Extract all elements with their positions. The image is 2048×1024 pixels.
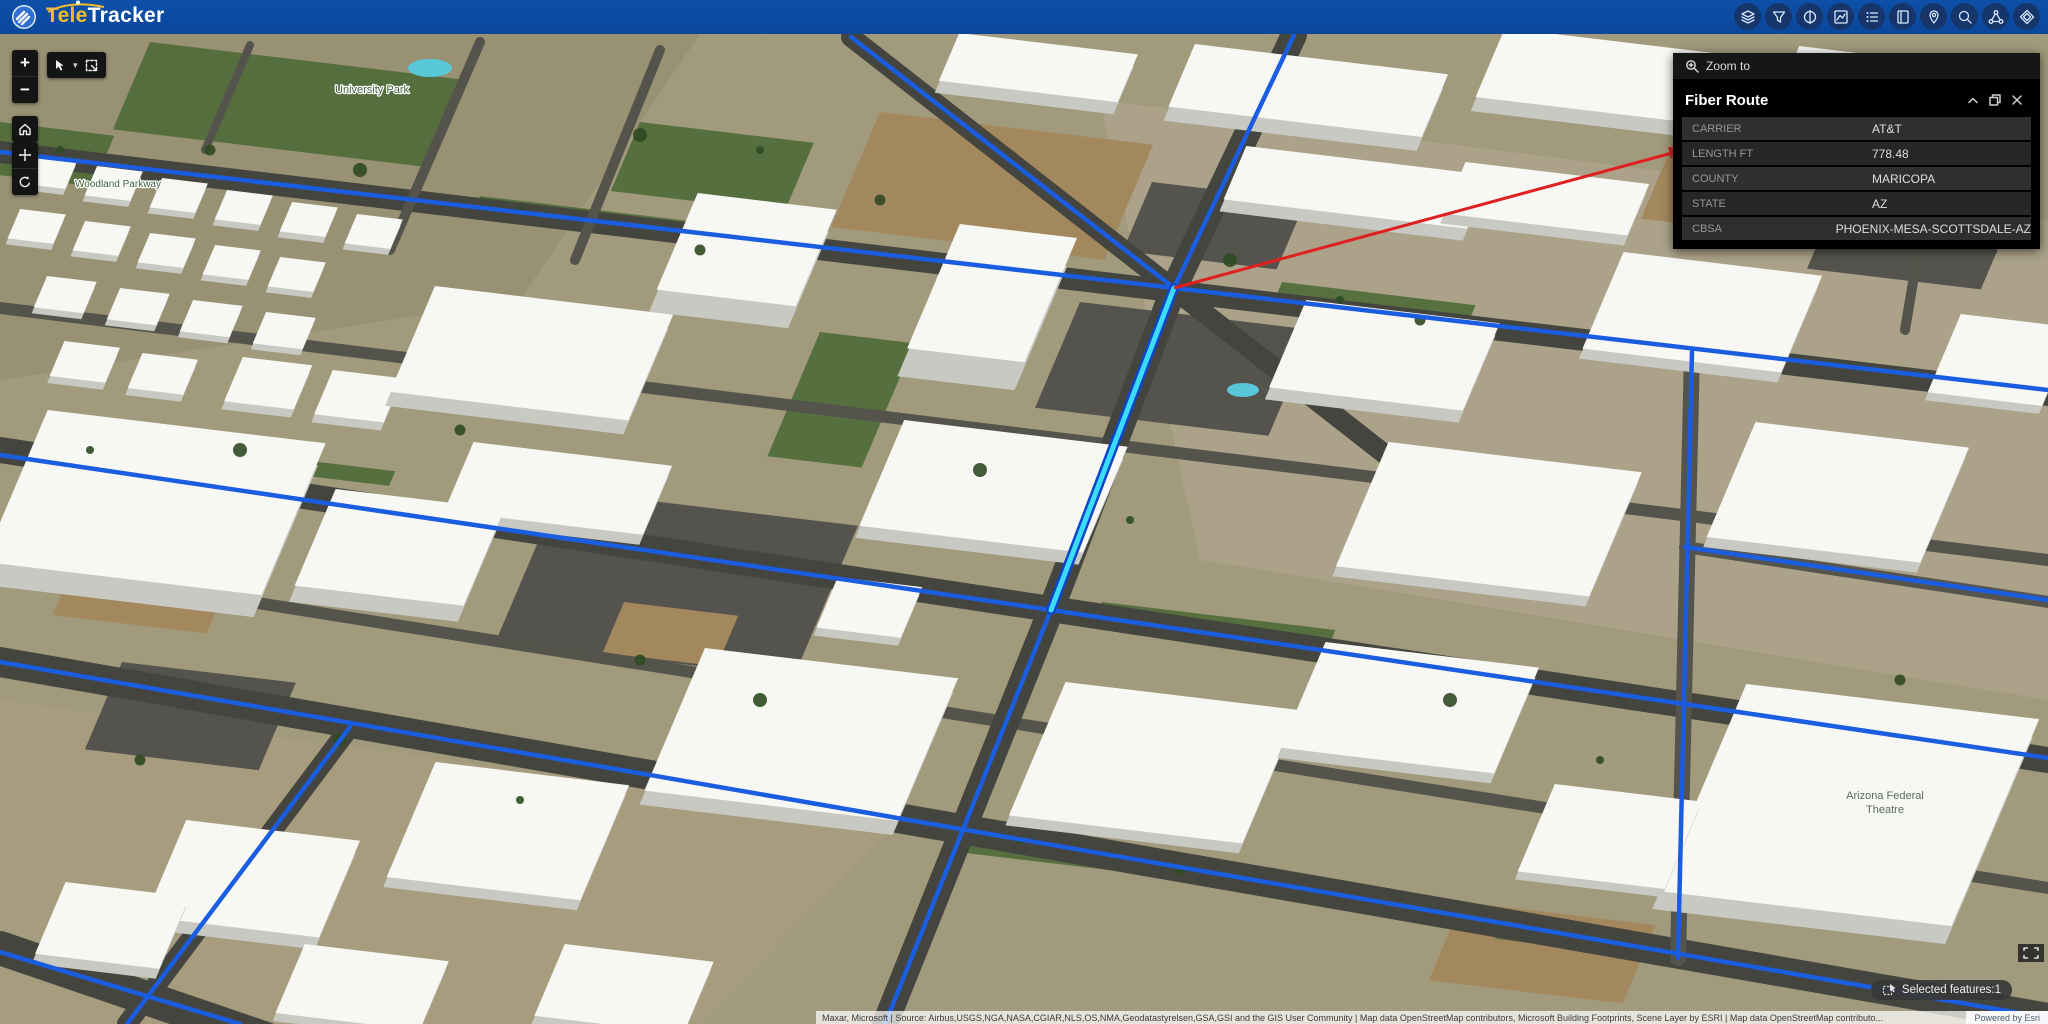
layers-icon[interactable] xyxy=(1734,3,1761,30)
powered-by-esri-link[interactable]: Powered by Esri xyxy=(1966,1011,2048,1024)
teletracker-logo-icon xyxy=(10,3,38,31)
pan-button[interactable] xyxy=(12,142,38,168)
zoom-to-label: Zoom to xyxy=(1706,59,1750,73)
header-toolbar xyxy=(1734,3,2040,30)
selection-toolbar: ▾ xyxy=(47,52,106,78)
attribute-value: MARICOPA xyxy=(1872,172,2031,186)
label-theatre-line2: Theatre xyxy=(1866,804,1904,816)
zoom-out-button[interactable]: − xyxy=(12,76,38,103)
attribute-value: AZ xyxy=(1872,197,2031,211)
share-network-icon[interactable] xyxy=(1982,3,2009,30)
dock-popup-icon[interactable] xyxy=(1984,89,2006,111)
attribute-label: CBSA xyxy=(1682,223,1836,235)
attribute-label: STATE xyxy=(1682,198,1872,210)
popup-title-bar: Fiber Route xyxy=(1673,85,2040,115)
close-popup-icon[interactable] xyxy=(2006,89,2028,111)
select-tool-button[interactable] xyxy=(50,52,70,78)
attribute-label: COUNTY xyxy=(1682,173,1872,185)
attribute-row: COUNTY MARICOPA xyxy=(1682,167,2031,190)
location-pin-icon[interactable] xyxy=(1920,3,1947,30)
collapse-popup-icon[interactable] xyxy=(1962,89,1984,111)
selected-features-badge: Selected features:1 xyxy=(1871,980,2012,1000)
attribution-text: Maxar, Microsoft | Source: Airbus,USGS,N… xyxy=(816,1013,1883,1023)
navigation-mode-control xyxy=(12,142,38,195)
label-woodland-parkway: Woodland Parkway xyxy=(75,179,161,190)
rectangle-select-button[interactable] xyxy=(81,52,103,78)
legend-icon[interactable] xyxy=(1858,3,1885,30)
swipe-icon[interactable] xyxy=(1796,3,1823,30)
attribute-row: LENGTH FT 778.48 xyxy=(1682,142,2031,165)
search-icon[interactable] xyxy=(1951,3,1978,30)
home-button[interactable] xyxy=(12,116,38,142)
zoom-to-icon xyxy=(1685,59,1699,73)
selected-features-text: Selected features:1 xyxy=(1902,984,2001,996)
basemap-icon[interactable] xyxy=(2013,3,2040,30)
attribute-value: 778.48 xyxy=(1872,147,2031,161)
zoom-in-button[interactable]: + xyxy=(12,50,38,76)
attribute-table: CARRIER AT&T LENGTH FT 778.48 COUNTY MAR… xyxy=(1682,117,2031,240)
app-header: TeleTracker xyxy=(0,0,2048,34)
label-university-park: University Park xyxy=(335,84,409,96)
popup-title: Fiber Route xyxy=(1685,92,1962,109)
label-theatre-line1: Arizona Federal xyxy=(1846,790,1924,802)
rotate-button[interactable] xyxy=(12,168,38,195)
fullscreen-icon[interactable] xyxy=(2018,944,2044,962)
selection-icon xyxy=(1882,983,1896,997)
attribute-value: PHOENIX-MESA-SCOTTSDALE-AZ xyxy=(1836,222,2031,236)
home-control xyxy=(12,116,38,142)
zoom-to-button[interactable]: Zoom to xyxy=(1673,53,2040,85)
zoom-control: + − xyxy=(12,50,38,103)
logo-swoosh xyxy=(44,0,108,14)
attribute-label: LENGTH FT xyxy=(1682,148,1872,160)
bookmark-icon[interactable] xyxy=(1889,3,1916,30)
chart-icon[interactable] xyxy=(1827,3,1854,30)
teletracker-app: University Park Woodland Parkway Arizona… xyxy=(0,0,2048,1024)
attribute-row: CARRIER AT&T xyxy=(1682,117,2031,140)
fiber-route-popup: Zoom to Fiber Route CARRIER AT&T LENGTH … xyxy=(1673,53,2040,249)
attribute-row: STATE AZ xyxy=(1682,192,2031,215)
attribute-label: CARRIER xyxy=(1682,123,1872,135)
filter-icon[interactable] xyxy=(1765,3,1792,30)
attribute-row: CBSA PHOENIX-MESA-SCOTTSDALE-AZ xyxy=(1682,217,2031,240)
select-tool-dropdown-caret[interactable]: ▾ xyxy=(70,60,81,71)
attribution-bar: Maxar, Microsoft | Source: Airbus,USGS,N… xyxy=(816,1011,2048,1024)
attribute-value: AT&T xyxy=(1872,122,2031,136)
